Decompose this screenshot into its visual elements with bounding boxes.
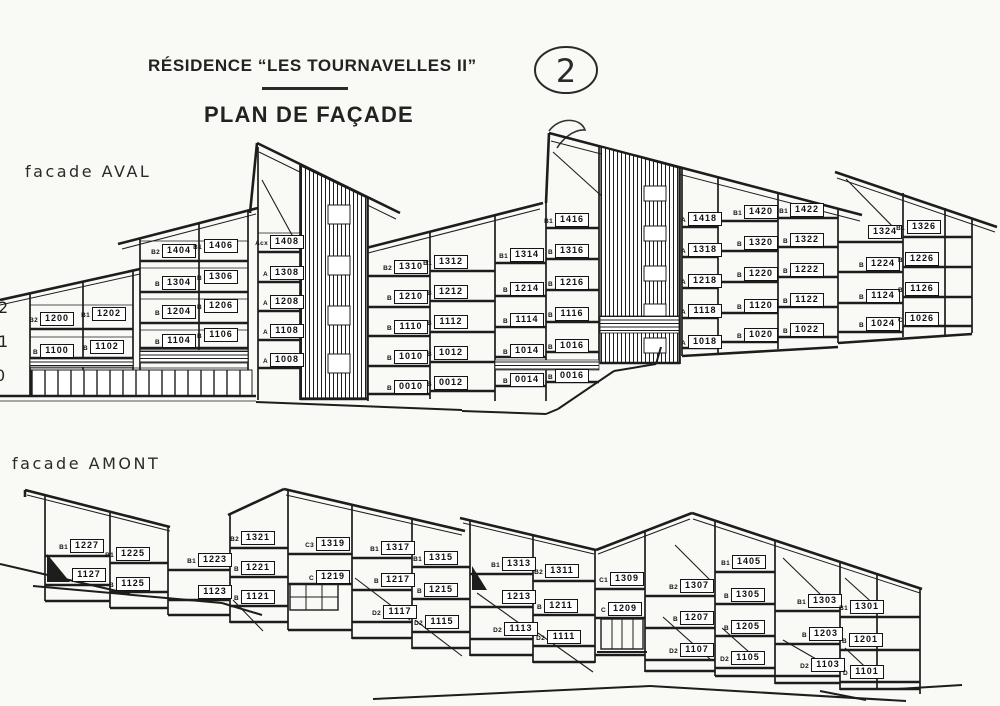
unit-label: B1306 [186,270,238,284]
unit-label: B1221 [223,561,275,575]
unit-label: D1101 [832,665,884,679]
unit-label: C31319 [298,537,350,551]
unit-label: B1125 [98,577,150,591]
unit-label: D21107 [662,643,714,657]
unit-label: B1116 [537,307,589,321]
amont-floors [45,548,920,689]
unit-label: A1008 [252,353,304,367]
unit-label: B11405 [714,555,766,569]
unit-label: B11416 [537,213,589,227]
unit-label: C1209 [590,602,642,616]
unit-label: B21321 [223,531,275,545]
amont-walls [45,490,920,694]
floor-level-digit: 1 [0,332,8,351]
unit-label: B11315 [406,551,458,565]
unit-label: C11309 [592,572,644,586]
drawing-subtitle: PLAN DE FAÇADE [204,102,414,128]
unit-label: B21307 [662,579,714,593]
unit-label: D21105 [713,651,765,665]
facade-amont-label: facade AMONT [12,454,160,473]
unit-label: B11312 [416,255,468,269]
unit-label: A1418 [670,212,722,226]
unit-label: B1207 [662,611,714,625]
unit-label: D21111 [529,630,581,644]
unit-label: B1215 [406,583,458,597]
sheet-number-circle: 2 [535,47,597,148]
unit-label: Acx1408 [252,235,304,249]
unit-label: B1016 [537,339,589,353]
unit-label: B1100 [22,344,74,358]
unit-label: B1206 [186,299,238,313]
unit-label: A1318 [670,243,722,257]
unit-label: B1212 [416,285,468,299]
unit-label: B1122 [772,293,824,307]
unit-label: B1020 [726,328,778,342]
unit-label: B1226 [887,252,939,266]
unit-label: B1320 [726,236,778,250]
unit-label: B11301 [832,600,884,614]
unit-label: B1316 [537,244,589,258]
unit-label: B11225 [98,547,150,561]
unit-label: D21115 [407,615,459,629]
unit-label: C1026 [887,312,939,326]
unit-label: B0012 [416,376,468,390]
unit-label: B11422 [772,203,824,217]
unit-label: A1218 [670,274,722,288]
floor-level-digit: 2 [0,298,8,317]
unit-label: A1118 [670,304,722,318]
unit-label: B21200 [22,312,74,326]
unit-label: B1222 [772,263,824,277]
unit-label: B1220 [726,267,778,281]
unit-label: B1205 [713,620,765,634]
title-underline [262,87,348,90]
unit-label: B21311 [527,564,579,578]
unit-label: A1108 [252,324,304,338]
unit-label: B1201 [831,633,883,647]
unit-label: A1308 [252,266,304,280]
unit-label: B1305 [713,588,765,602]
unit-label: B0016 [537,369,589,383]
unit-label: B1216 [537,276,589,290]
unit-label: B1112 [416,315,468,329]
unit-label: B11326 [889,220,941,234]
facade-plan-sheet: 2 [0,0,1000,706]
unit-label: B1106 [186,328,238,342]
unit-label: B1012 [416,346,468,360]
unit-label: B1120 [726,299,778,313]
sheet-number: 2 [556,52,576,90]
unit-label: B1126 [887,282,939,296]
drawing-title: RÉSIDENCE “LES TOURNAVELLES II” [148,56,477,76]
unit-label: B1022 [772,323,824,337]
unit-label: B11420 [726,205,778,219]
unit-label: B1102 [72,340,124,354]
facade-aval-label: facade AVAL [25,162,151,181]
unit-label: A1208 [252,295,304,309]
unit-label: C1219 [298,570,350,584]
unit-label: B11406 [186,239,238,253]
unit-label: B1121 [223,590,275,604]
unit-label: A1018 [670,335,722,349]
unit-label: B1211 [526,599,578,613]
aval-towers [301,147,679,398]
unit-label: B11202 [74,307,126,321]
unit-label: B11227 [52,539,104,553]
unit-label: B1322 [772,233,824,247]
floor-level-digit: 0 [0,366,5,385]
